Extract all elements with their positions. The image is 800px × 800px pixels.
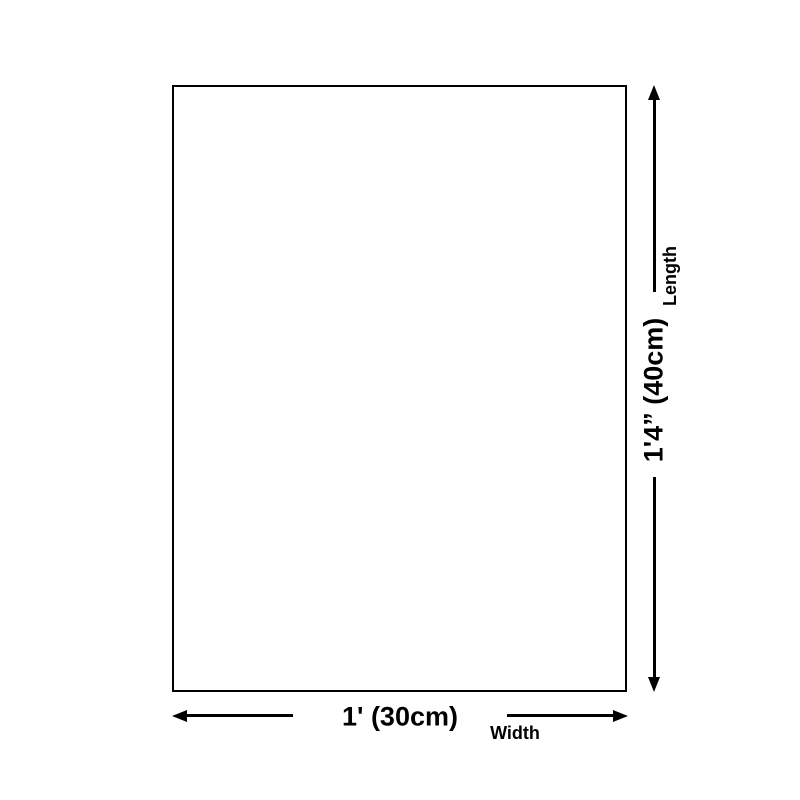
dimension-diagram: Length 1'4” (40cm) 1' (30cm) Width bbox=[0, 0, 800, 800]
width-value: 1' (30cm) bbox=[342, 704, 458, 731]
width-label: Width bbox=[490, 724, 540, 742]
length-value: 1'4” (40cm) bbox=[641, 318, 668, 463]
width-dimension-line-left bbox=[185, 714, 293, 717]
length-dimension-line-upper bbox=[653, 97, 656, 292]
length-label: Length bbox=[661, 246, 679, 306]
product-outline-rectangle bbox=[172, 85, 627, 692]
arrow-down-icon bbox=[648, 677, 660, 692]
length-dimension-line-lower bbox=[653, 477, 656, 678]
width-dimension-line-right bbox=[507, 714, 615, 717]
arrow-right-icon bbox=[613, 710, 628, 722]
